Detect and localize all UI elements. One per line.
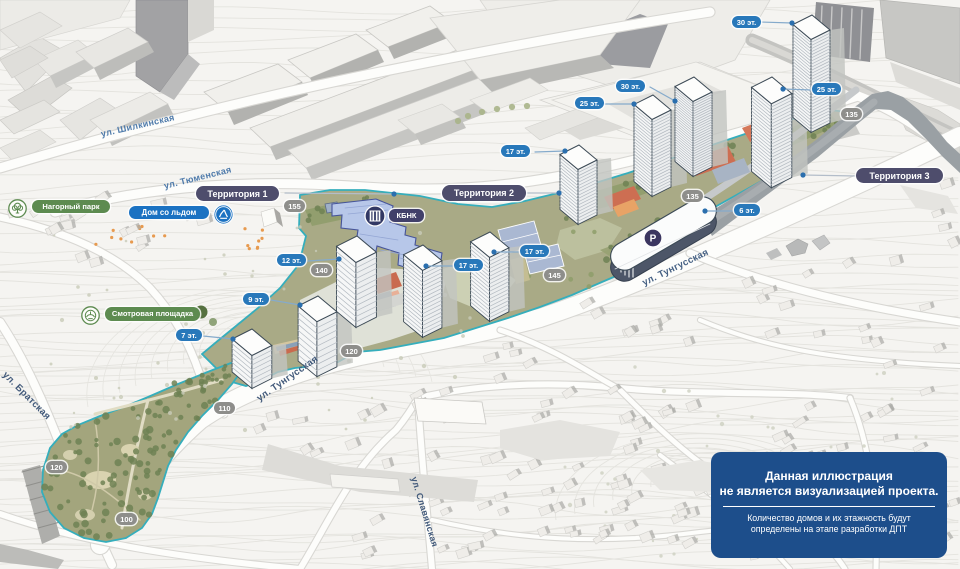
svg-text:P: P: [650, 234, 657, 245]
